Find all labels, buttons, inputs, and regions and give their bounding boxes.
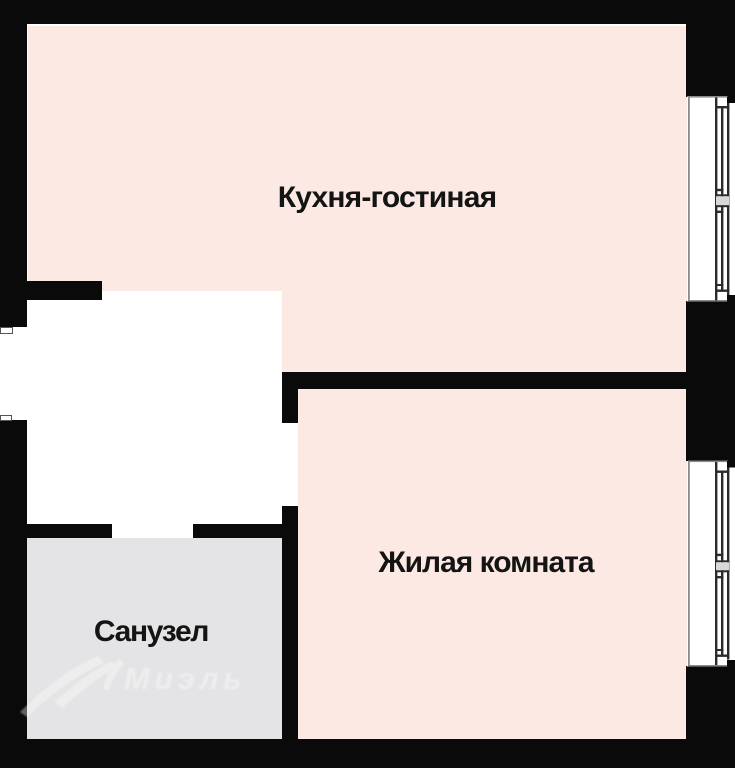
svg-text:Миэль: Миэль [124, 661, 246, 696]
